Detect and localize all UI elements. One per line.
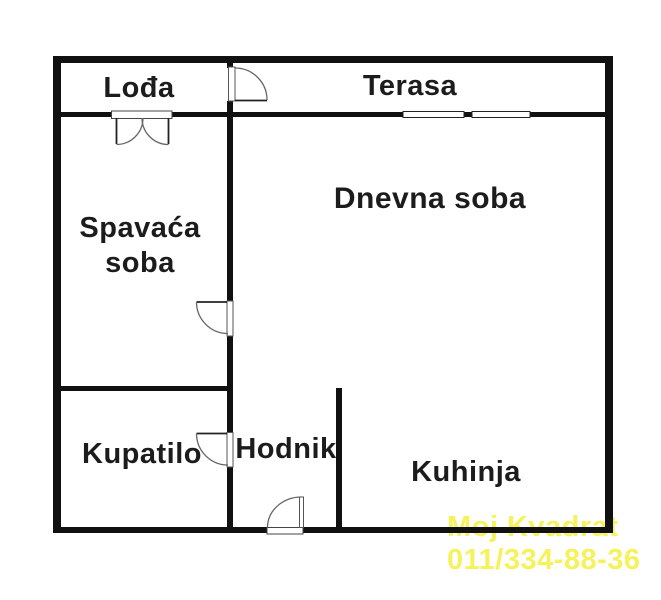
door-swing-arc-icon <box>235 68 267 100</box>
window-pane-left <box>403 112 464 118</box>
wall-outer-bottom-right <box>303 527 613 533</box>
room-label-kupatilo: Kupatilo <box>62 437 222 472</box>
door-leaf-icon <box>227 301 233 336</box>
wall-vertical-main-upper <box>227 101 233 301</box>
door-leaf-icon <box>300 497 304 528</box>
door-frame-icon <box>112 111 173 119</box>
wall-vertical-main-lower <box>227 467 233 527</box>
wall-balcony-segment-c <box>530 112 605 117</box>
door-bedroom <box>197 301 234 336</box>
wall-outer-left <box>53 56 61 533</box>
door-frame-icon <box>267 528 303 535</box>
wall-balcony-segment-b <box>172 112 403 117</box>
door-swing-arc-icon <box>197 302 229 334</box>
door-leaf-icon <box>229 67 236 101</box>
door-swing-arc-icon <box>268 497 302 528</box>
wall-outer-bottom-left <box>53 527 267 533</box>
wall-outer-top <box>53 56 613 63</box>
wall-bedroom-bathroom-divider <box>61 386 233 391</box>
wall-balcony-segment-a <box>61 112 112 117</box>
room-label-kuhinja: Kuhinja <box>386 455 546 490</box>
window-pane-right <box>472 112 530 118</box>
wall-balcony-window-mullion <box>464 112 472 117</box>
door-loda-terasa <box>229 67 268 101</box>
room-label-loda: Lođa <box>79 71 199 106</box>
door-left-swing-arc-icon <box>117 118 144 145</box>
wall-vertical-main-middle <box>227 336 233 432</box>
wall-outer-right <box>605 56 613 533</box>
door-entrance <box>267 497 304 534</box>
room-label-spavaca-soba: Spavaća soba <box>65 211 215 281</box>
door-right-swing-arc-icon <box>142 118 169 145</box>
room-label-dnevna-soba: Dnevna soba <box>325 181 535 216</box>
room-label-hodnik: Hodnik <box>226 432 346 467</box>
double-door-loda-bedroom <box>112 111 173 145</box>
floorplan-canvas: Moj Kvadrat 011/334-88-36 <box>0 0 661 600</box>
room-label-terasa: Terasa <box>350 69 470 104</box>
